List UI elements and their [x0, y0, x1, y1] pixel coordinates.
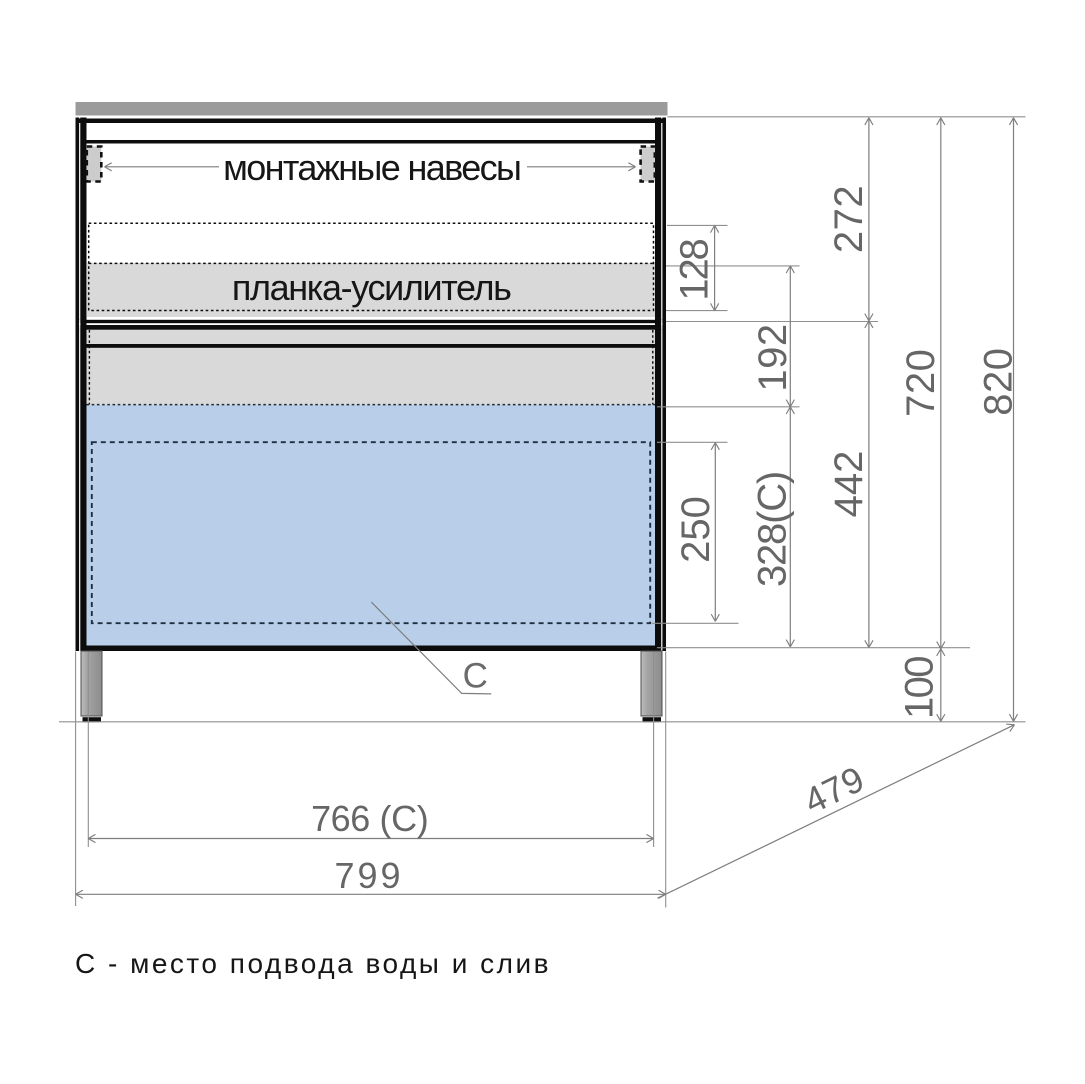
svg-text:479: 479: [797, 758, 870, 822]
svg-text:100: 100: [898, 657, 942, 719]
svg-text:328(С): 328(С): [751, 472, 795, 587]
svg-text:442: 442: [827, 451, 871, 518]
svg-text:монтажные навесы: монтажные навесы: [223, 147, 520, 188]
svg-text:799: 799: [334, 855, 403, 896]
svg-text:250: 250: [674, 496, 718, 563]
svg-text:планка-усилитель: планка-усилитель: [232, 267, 511, 308]
svg-text:128: 128: [673, 239, 717, 300]
svg-text:272: 272: [827, 185, 871, 253]
svg-text:766 (С): 766 (С): [311, 798, 428, 839]
svg-text:C: C: [463, 657, 488, 696]
svg-text:192: 192: [751, 323, 795, 391]
svg-text:820: 820: [977, 347, 1021, 415]
svg-text:720: 720: [899, 349, 943, 417]
svg-text:С - место подвода воды и слив: С - место подвода воды и слив: [75, 948, 551, 979]
